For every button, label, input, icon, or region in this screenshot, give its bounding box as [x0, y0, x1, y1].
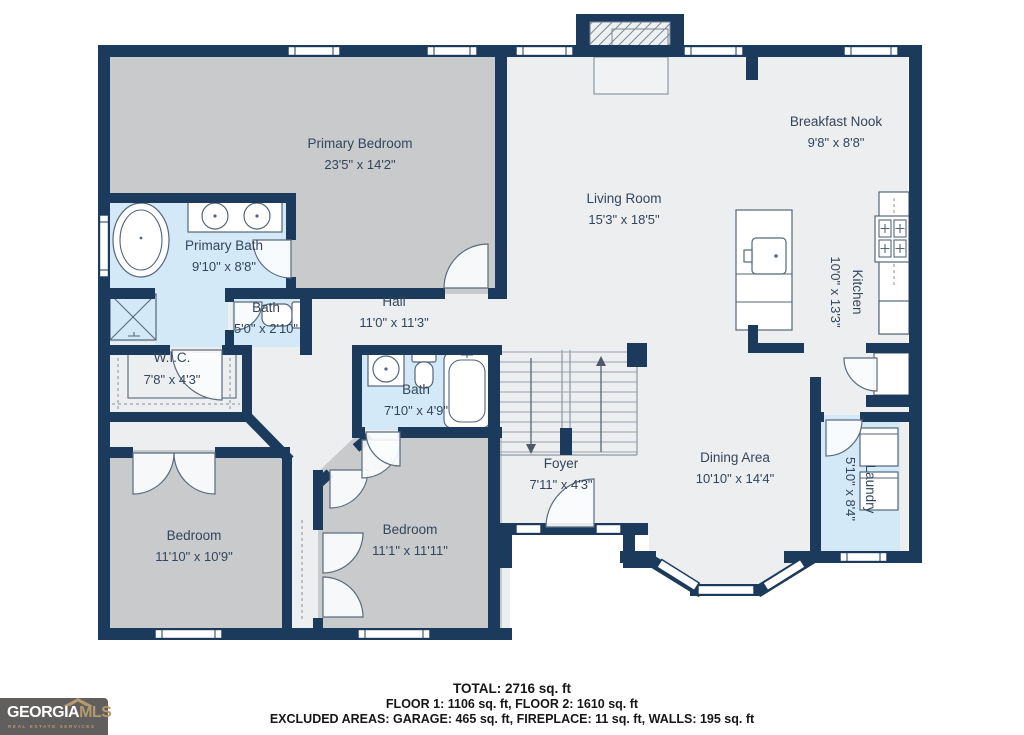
- room-dims-living-room: 15'3" x 18'5": [588, 212, 660, 227]
- room-dims-laundry: 5'10" x 8'4": [843, 457, 858, 521]
- room-dims-wic: 7'8" x 4'3": [144, 372, 201, 387]
- hearth-icon: [594, 57, 668, 94]
- room-label-kitchen: Kitchen: [850, 269, 865, 314]
- floor-plan-page: Primary Bedroom 23'5" x 14'2" Primary Ba…: [0, 0, 1024, 735]
- room-dims-breakfast-nook: 9'8" x 8'8": [808, 135, 865, 150]
- room-dims-bedroom-left: 11'10" x 10'9": [155, 549, 233, 564]
- excluded-areas-text: EXCLUDED AREAS: GARAGE: 465 sq. ft, FIRE…: [0, 712, 1024, 727]
- room-dims-foyer: 7'11" x 4'3": [529, 477, 592, 492]
- room-dims-hall: 11'0" x 11'3": [359, 315, 429, 330]
- room-label-laundry: Laundry: [863, 465, 878, 514]
- room-label-dining-area: Dining Area: [700, 450, 770, 465]
- room-dims-primary-bedroom: 23'5" x 14'2": [324, 157, 396, 172]
- room-dims-primary-bath: 9'10" x 8'8": [192, 259, 256, 274]
- room-label-hall: Hall: [382, 294, 405, 309]
- total-area-text: TOTAL: 2716 sq. ft: [0, 681, 1024, 697]
- shower-icon: [110, 294, 156, 340]
- sink-icon: [368, 352, 404, 386]
- room-dims-kitchen: 10'0" x 13'3": [828, 256, 843, 328]
- room-label-living-room: Living Room: [586, 191, 661, 206]
- vanity-double-sink-icon: [188, 198, 282, 232]
- room-label-wic: W.I.C.: [154, 350, 191, 365]
- room-dims-bath-small: 5'0" x 2'10": [234, 321, 298, 336]
- room-label-bedroom-right: Bedroom: [383, 522, 438, 537]
- area-summary: TOTAL: 2716 sq. ft FLOOR 1: 1106 sq. ft,…: [0, 681, 1024, 727]
- room-dims-bedroom-right: 11'1" x 11'11": [372, 543, 448, 558]
- pantry-cabinet-icon: [874, 353, 909, 395]
- logo-tagline: REAL ESTATE SERVICES: [8, 724, 96, 729]
- room-label-primary-bath: Primary Bath: [185, 238, 263, 253]
- georgia-mls-logo: GEORGIAMLS REAL ESTATE SERVICES: [0, 698, 108, 735]
- room-label-breakfast-nook: Breakfast Nook: [790, 114, 883, 129]
- logo-text-georgia: GEORGIA: [7, 705, 79, 721]
- logo-text-mls: MLS: [79, 705, 111, 721]
- room-label-bedroom-left: Bedroom: [167, 528, 222, 543]
- room-dims-dining-area: 10'10" x 14'4": [696, 471, 775, 486]
- bathtub-icon: [113, 203, 169, 277]
- kitchen-island-icon: [736, 210, 792, 330]
- room-label-foyer: Foyer: [544, 456, 579, 471]
- room-label-bath-small: Bath: [252, 300, 280, 315]
- floor-areas-text: FLOOR 1: 1106 sq. ft, FLOOR 2: 1610 sq. …: [0, 697, 1024, 712]
- washer-icon: [860, 428, 898, 466]
- kitchen-counter-icon: [875, 192, 909, 334]
- room-label-bath-hall: Bath: [402, 382, 430, 397]
- floor-plan-canvas: Primary Bedroom 23'5" x 14'2" Primary Ba…: [0, 0, 1024, 735]
- room-label-primary-bedroom: Primary Bedroom: [307, 136, 412, 151]
- room-dims-bath-hall: 7'10" x 4'9": [384, 403, 448, 418]
- bathtub-icon: [444, 352, 490, 428]
